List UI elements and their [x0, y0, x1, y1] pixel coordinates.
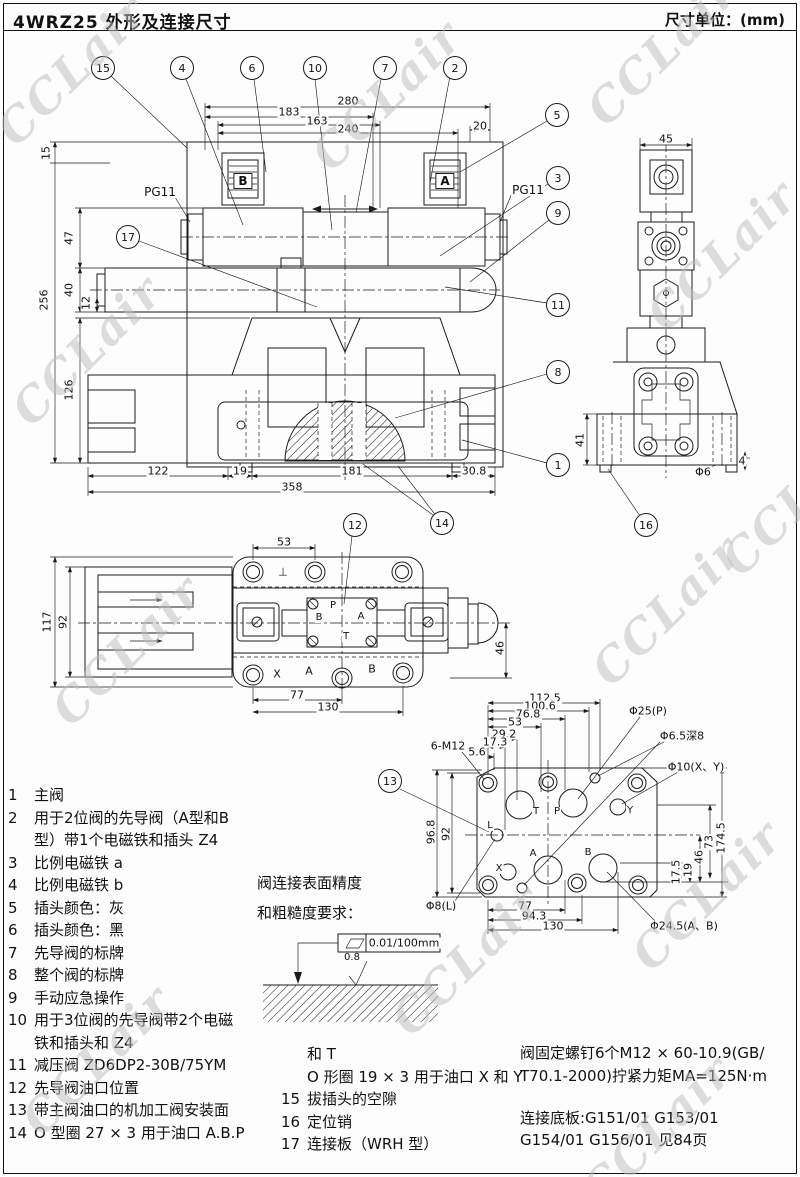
dimension-label: 19 [683, 862, 694, 878]
drawing-label: T [532, 807, 540, 817]
dimension-label: 130 [317, 702, 340, 713]
callout-9: 9 [546, 201, 570, 225]
dimension-label: 45 [658, 134, 674, 145]
item-text: 减压阀 ZD6DP2-30B/75YM [34, 1054, 226, 1077]
item-number: 1 [8, 784, 34, 807]
callout-2: 2 [443, 56, 467, 80]
callout-16: 16 [634, 513, 658, 537]
drawing-label: X [495, 864, 504, 874]
mounting-screw-note: 阀固定螺钉6个M12 × 60-10.9(GB/T70.1-2000)拧紧力矩M… [520, 1042, 767, 1088]
item-number: 14 [8, 1122, 34, 1145]
item-number: 12 [8, 1077, 34, 1100]
item-number: 5 [8, 897, 34, 920]
callout-8: 8 [546, 360, 570, 384]
dimension-label: 126 [64, 379, 75, 402]
item-number: 6 [8, 919, 34, 942]
item-text: 插头颜色：黑 [34, 919, 124, 942]
item-number: 3 [8, 852, 34, 875]
dimension-label: 92 [58, 614, 69, 630]
dimension-label: 46 [495, 640, 506, 656]
list-item: 17连接板（WRH 型） [281, 1133, 523, 1156]
dimension-label: 15 [41, 145, 52, 161]
callout-12: 12 [343, 513, 367, 537]
list-item: 2用于2位阀的先导阀（A型和B型）带1个电磁铁和插头 Z4 [8, 807, 244, 852]
drawing-label: 0.8 [343, 953, 361, 963]
list-item: 3比例电磁铁 a [8, 852, 244, 875]
list-item: 10用于3位阀的先导阀带2个电磁铁和插头和 Z4 [8, 1009, 244, 1054]
dimension-label: 40 [64, 282, 75, 298]
list-item: 9手动应急操作 [8, 987, 244, 1010]
item-text: 定位销 [307, 1111, 352, 1134]
drawing-label: B [584, 848, 593, 858]
item-number: 2 [8, 807, 34, 852]
drawing-label: Φ24.5(A、B) [649, 921, 719, 932]
item-number [281, 1066, 307, 1089]
dimension-label: 130 [542, 921, 565, 932]
list-item: 7先导阀的标牌 [8, 942, 244, 965]
item-number: 17 [281, 1133, 307, 1156]
list-item: 8整个阀的标牌 [8, 964, 244, 987]
item-text: 比例电磁铁 a [34, 852, 123, 875]
dimension-label: 17.5 [671, 859, 682, 886]
item-text: 主阀 [34, 784, 64, 807]
list-item: 15拔插头的空隙 [281, 1088, 523, 1111]
drawing-label: P [553, 807, 561, 817]
dimension-label: 47 [64, 230, 75, 246]
dimension-label: 53 [276, 537, 292, 548]
list-item: 和 T [281, 1043, 523, 1066]
drawing-label: ⊥ [277, 567, 289, 578]
drawing-label: P [329, 601, 337, 611]
drawing-label: X [272, 669, 282, 680]
item-text: 连接板（WRH 型） [307, 1133, 438, 1156]
surface-precision-note-line2: 和粗糙度要求： [257, 902, 362, 923]
dimension-label: 41 [575, 432, 586, 448]
list-item: 6插头颜色：黑 [8, 919, 244, 942]
drawing-label: A [435, 173, 454, 189]
list-item: 4比例电磁铁 b [8, 874, 244, 897]
item-number: 10 [8, 1009, 34, 1054]
item-text: 插头颜色：灰 [34, 897, 124, 920]
list-item: 12先导阀油口位置 [8, 1077, 244, 1100]
list-item: O 形圈 19 × 3 用于油口 X 和 Y [281, 1066, 523, 1089]
dimension-label: 12 [81, 295, 92, 311]
item-text: 拔插头的空隙 [307, 1088, 397, 1111]
dimension-label: 181 [341, 466, 364, 477]
drawing-label: 6-M12 [430, 741, 466, 752]
list-item: 16定位销 [281, 1111, 523, 1134]
page: 4WRZ25 外形及连接尺寸 尺寸单位：(mm) [0, 0, 800, 1177]
item-text: O 型圈 27 × 3 用于油口 A.B.P [34, 1122, 244, 1145]
list-item: 1主阀 [8, 784, 244, 807]
dimension-label: 20 [472, 121, 488, 132]
drawing-label: B [233, 173, 252, 189]
list-item: 13带主阀油口的机加工阀安装面 [8, 1099, 244, 1122]
dimension-label: 19 [232, 466, 248, 477]
dimension-label: 92 [441, 826, 452, 842]
callout-4: 4 [170, 56, 194, 80]
dimension-label: 53 [507, 717, 523, 728]
drawing-label: Φ10(X、Y) [667, 762, 726, 773]
item-number: 9 [8, 987, 34, 1010]
parts-list-continued: 和 TO 形圈 19 × 3 用于油口 X 和 Y15拔插头的空隙16定位销17… [281, 1043, 523, 1156]
dimension-label: 73 [704, 834, 715, 850]
item-number: 16 [281, 1111, 307, 1134]
dimension-label: 358 [281, 482, 304, 493]
item-number: 4 [8, 874, 34, 897]
dimension-label: 4 [738, 456, 747, 467]
dimension-label: 117 [42, 611, 53, 634]
drawing-label: L [486, 821, 494, 831]
list-item: 5插头颜色：灰 [8, 897, 244, 920]
dimension-label: 77 [289, 690, 305, 701]
item-text: 比例电磁铁 b [34, 874, 123, 897]
item-text: 用于2位阀的先导阀（A型和B型）带1个电磁铁和插头 Z4 [34, 807, 229, 852]
callout-15: 15 [91, 56, 115, 80]
callout-1: 1 [546, 453, 570, 477]
item-number: 7 [8, 942, 34, 965]
drawing-label: PG11 [143, 186, 177, 198]
drawing-label: 0.01/100mm [368, 938, 441, 949]
dimension-label: 96.8 [426, 819, 437, 846]
callout-5: 5 [545, 103, 569, 127]
drawing-label: PG11 [511, 184, 545, 196]
drawing-label: B [367, 664, 377, 675]
callout-7: 7 [373, 56, 397, 80]
drawing-label: Φ8(L) [425, 901, 457, 912]
drawing-label: Y [626, 806, 634, 816]
item-text: 和 T [307, 1043, 336, 1066]
dimension-label: 46 [694, 849, 705, 865]
dimension-label: 256 [39, 289, 50, 312]
dimension-label: 30.8 [461, 466, 488, 477]
item-number: 11 [8, 1054, 34, 1077]
dimension-label: 183 [278, 107, 301, 118]
drawing-label: A [529, 849, 538, 859]
callout-13: 13 [378, 769, 402, 793]
item-number: 15 [281, 1088, 307, 1111]
item-text: O 形圈 19 × 3 用于油口 X 和 Y [307, 1066, 523, 1089]
dimension-label: 280 [337, 96, 360, 107]
callout-14: 14 [430, 511, 454, 535]
surface-precision-note-line1: 阀连接表面精度 [257, 872, 362, 893]
callout-3: 3 [546, 166, 570, 190]
parts-list: 1主阀2用于2位阀的先导阀（A型和B型）带1个电磁铁和插头 Z43比例电磁铁 a… [8, 784, 244, 1144]
dimension-label: 174.5 [716, 821, 727, 855]
item-text: 用于3位阀的先导阀带2个电磁铁和插头和 Z4 [34, 1009, 233, 1054]
callout-17: 17 [116, 225, 140, 249]
drawing-label: T [342, 632, 350, 642]
item-number: 8 [8, 964, 34, 987]
drawing-label: Φ25(P) [628, 706, 668, 717]
dimension-label: 163 [306, 116, 329, 127]
drawing-label: Φ6 [694, 467, 712, 478]
item-text: 带主阀油口的机加工阀安装面 [34, 1099, 229, 1122]
list-item: 11减压阀 ZD6DP2-30B/75YM [8, 1054, 244, 1077]
callout-11: 11 [546, 293, 570, 317]
drawing-label: A [357, 612, 366, 622]
drawing-label: A [304, 666, 314, 677]
item-number: 13 [8, 1099, 34, 1122]
dimension-label: 122 [147, 466, 170, 477]
drawing-label: Φ6.5深8 [659, 731, 705, 742]
callout-6: 6 [240, 56, 264, 80]
item-text: 整个阀的标牌 [34, 964, 124, 987]
item-text: 手动应急操作 [34, 987, 124, 1010]
callout-10: 10 [303, 56, 327, 80]
item-text: 先导阀的标牌 [34, 942, 124, 965]
dimension-label: 240 [337, 124, 360, 135]
drawing-label: B [315, 613, 324, 623]
item-number [281, 1043, 307, 1066]
dimension-label: 5.6 [467, 747, 487, 758]
list-item: 14O 型圈 27 × 3 用于油口 A.B.P [8, 1122, 244, 1145]
item-text: 先导阀油口位置 [34, 1077, 139, 1100]
subplate-note: 连接底板:G151/01 G153/01G154/01 G156/01 见84页 [520, 1107, 719, 1151]
